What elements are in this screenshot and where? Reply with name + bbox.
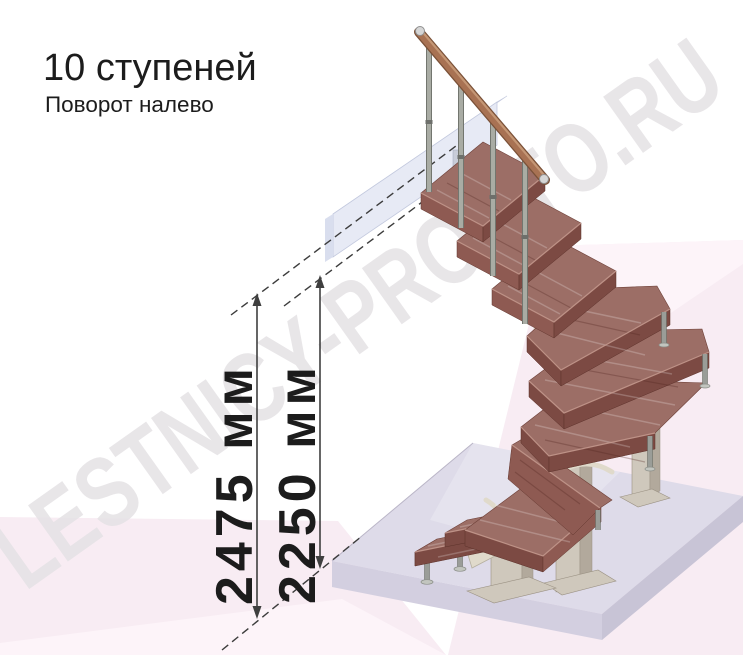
header: 10 ступеней Поворот налево xyxy=(43,47,257,117)
baluster-2 xyxy=(458,82,465,228)
diagram-canvas: LESTNICY-PROSTO.RU xyxy=(0,0,743,655)
dimension-label-2250: 2250 мм xyxy=(269,362,327,604)
page-subtitle: Поворот налево xyxy=(45,92,214,117)
staircase-diagram-page: LESTNICY-PROSTO.RU xyxy=(0,0,743,655)
dimension-label-2475: 2475 мм xyxy=(206,363,264,605)
baluster-3 xyxy=(490,120,497,276)
handrail-end-cap-top xyxy=(416,27,425,36)
baluster-4 xyxy=(522,158,529,324)
baluster-1 xyxy=(426,44,433,192)
page-title: 10 ступеней xyxy=(43,47,257,89)
handrail-end-cap-bottom xyxy=(540,175,549,184)
